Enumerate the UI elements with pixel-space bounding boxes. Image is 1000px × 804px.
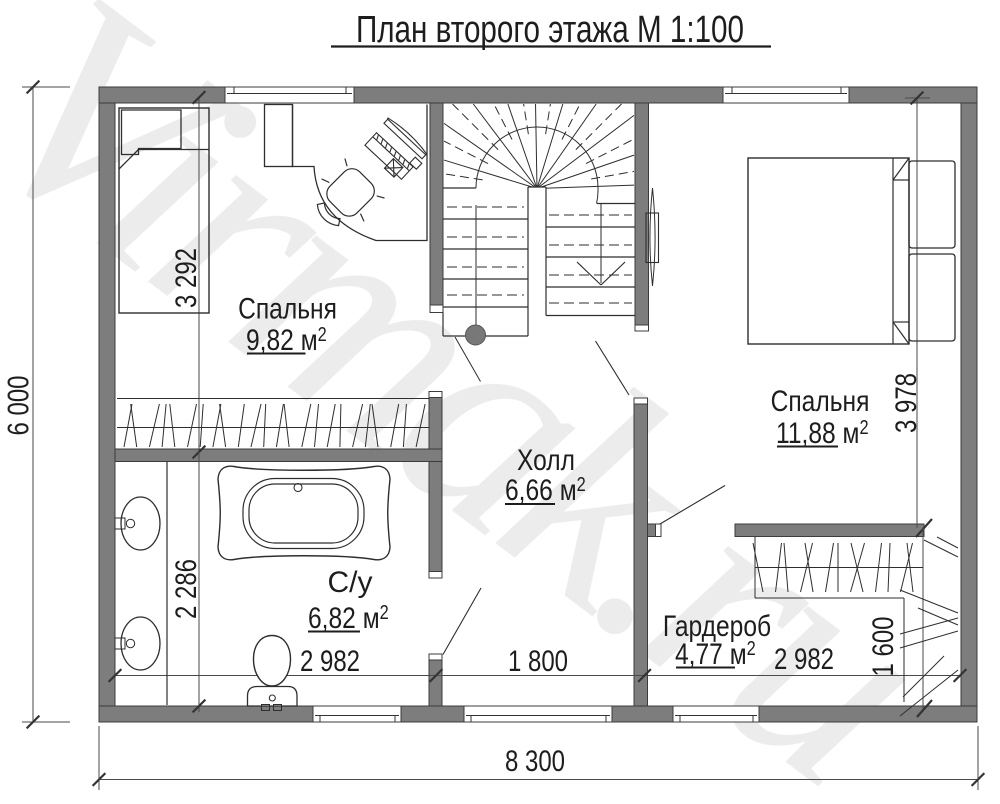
- svg-text:1 800: 1 800: [508, 643, 568, 677]
- svg-text:С/у: С/у: [328, 566, 373, 599]
- svg-text:Холл: Холл: [517, 443, 575, 477]
- svg-text:6,82 м2: 6,82 м2: [308, 600, 389, 634]
- svg-text:6 000: 6 000: [1, 375, 35, 435]
- svg-text:3 978: 3 978: [888, 373, 922, 433]
- svg-text:9,82 м2: 9,82 м2: [246, 322, 327, 356]
- svg-text:11,88 м2: 11,88 м2: [776, 415, 869, 449]
- svg-text:2 982: 2 982: [300, 643, 360, 677]
- svg-text:План второго этажа М 1:100: План второго этажа М 1:100: [356, 9, 744, 51]
- svg-text:Спальня: Спальня: [771, 384, 870, 418]
- svg-text:Спальня: Спальня: [238, 291, 337, 325]
- svg-text:1 600: 1 600: [865, 616, 899, 676]
- svg-text:2 982: 2 982: [774, 641, 834, 675]
- svg-text:4,77 м2: 4,77 м2: [675, 636, 756, 670]
- svg-text:8 300: 8 300: [505, 743, 565, 777]
- svg-text:3 292: 3 292: [168, 248, 202, 308]
- svg-text:6,66 м2: 6,66 м2: [505, 472, 586, 506]
- svg-text:2 286: 2 286: [168, 559, 202, 619]
